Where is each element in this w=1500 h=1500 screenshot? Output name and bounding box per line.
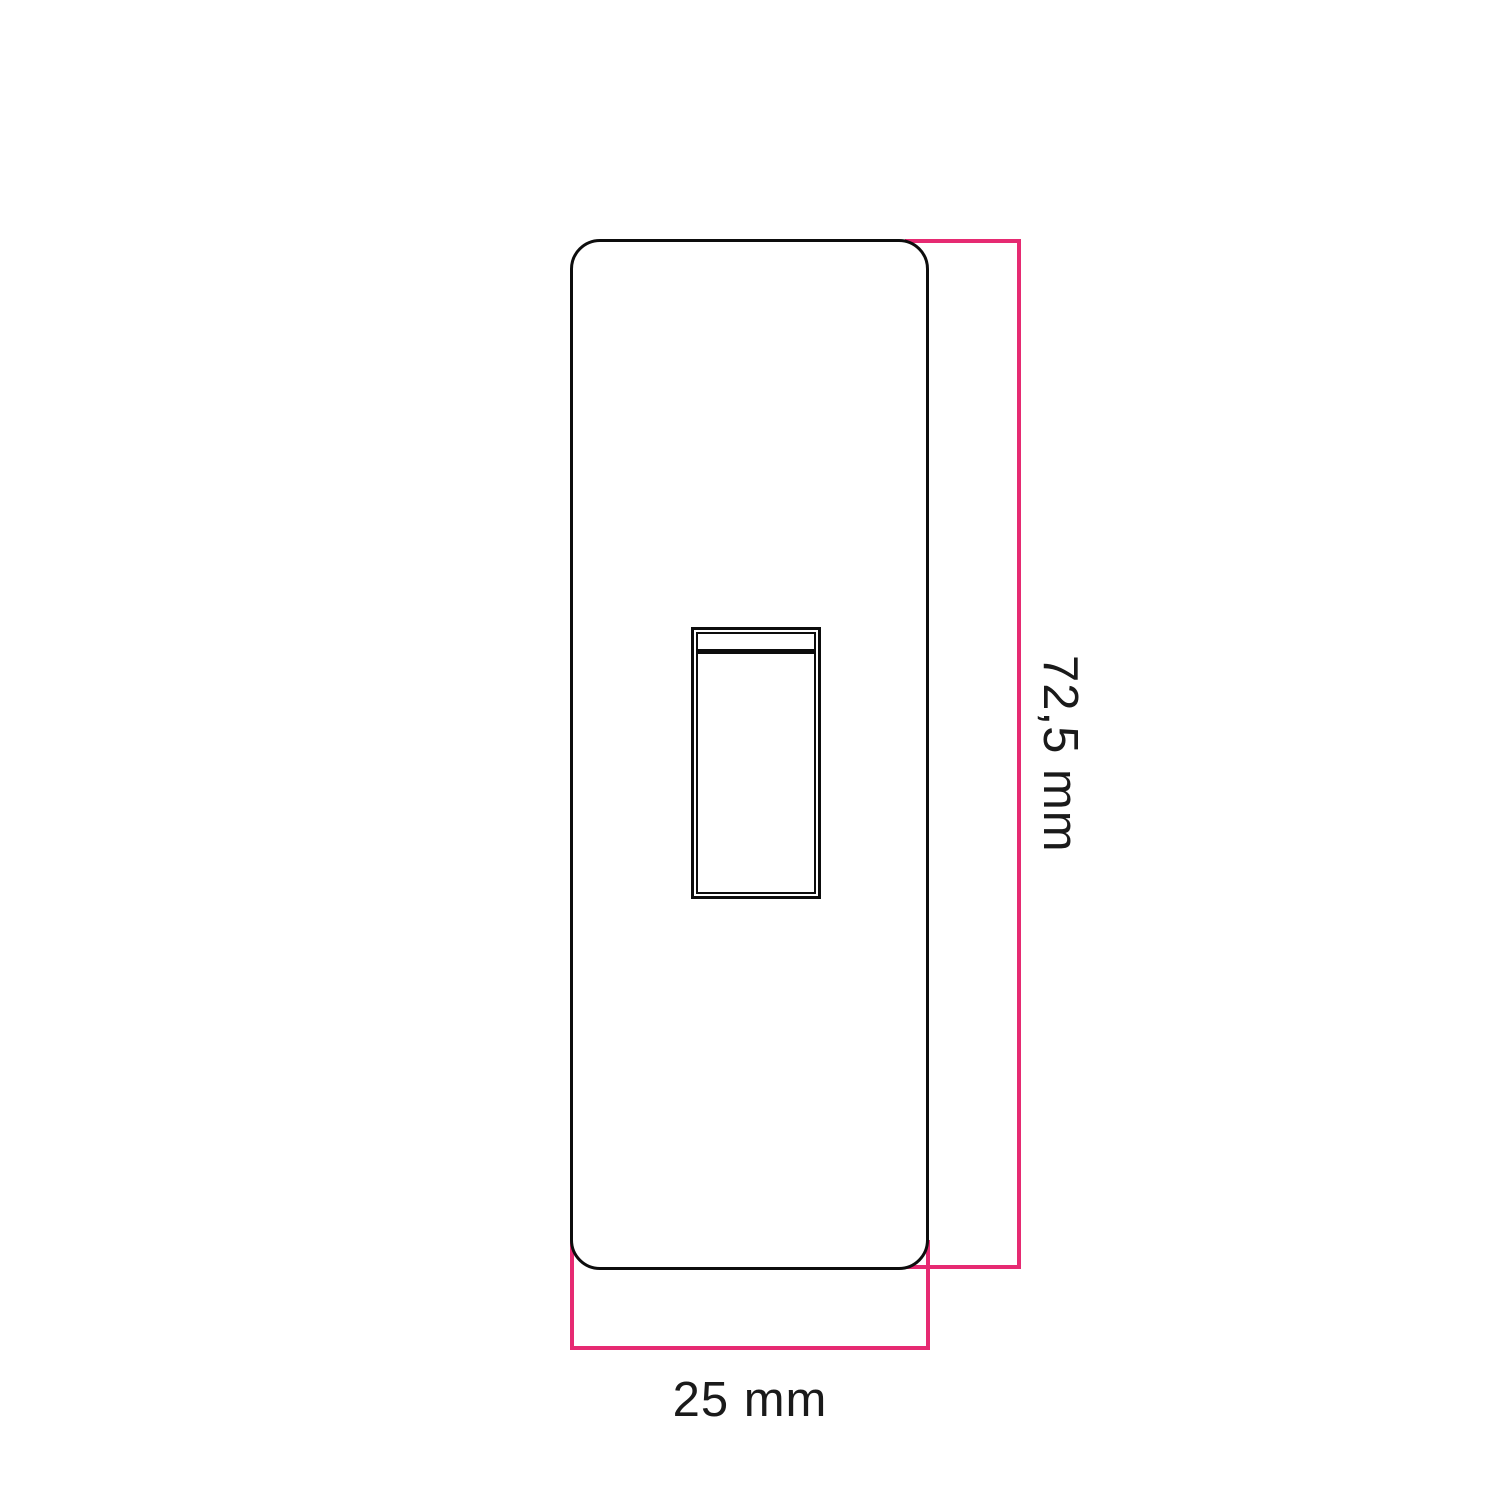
height-dimension-label: 72,5 mm — [1030, 239, 1088, 1269]
rocker-switch-cutout — [691, 627, 821, 899]
rocker-top-edge-line — [698, 649, 814, 654]
drawing-canvas: 72,5 mm 25 mm — [0, 0, 1500, 1500]
rocker-switch-inner-frame — [696, 632, 816, 894]
width-dimension-label: 25 mm — [570, 1372, 930, 1428]
switch-plate-outline — [570, 239, 929, 1270]
